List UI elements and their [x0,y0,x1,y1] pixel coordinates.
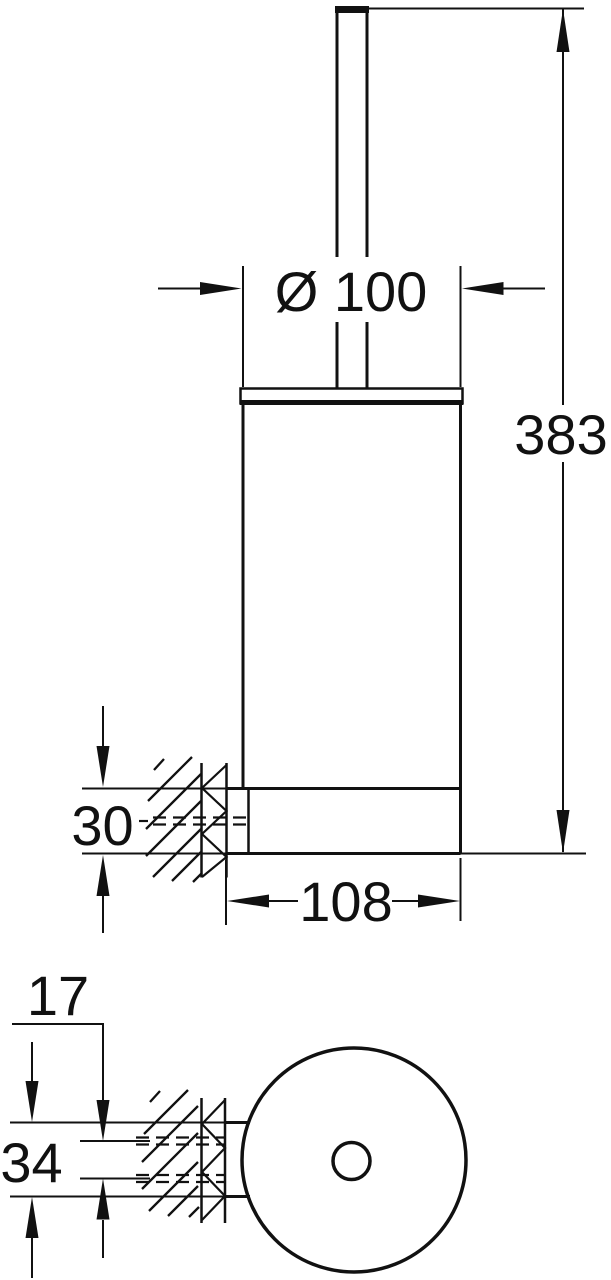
container-outline-circle [242,1048,466,1272]
container-body [243,404,461,854]
dimension-label-base-depth: 108 [299,870,392,933]
arrowhead-up [97,855,110,896]
dimension-label-overall-height: 383 [514,403,607,466]
technical-drawing-canvas: 383 Ø 100 30 108 [0,0,611,1280]
screw-centerlines [136,1138,225,1183]
dimension-overall-height: 383 [368,9,608,854]
center-hole-circle [333,1143,370,1180]
holder-base [227,789,461,854]
arrowhead-up [97,1179,110,1220]
dimension-plate-height: 34 [0,1042,225,1278]
dimension-bracket-height: 30 [71,706,227,933]
brush-handle-cap [335,6,369,13]
arrowhead-left [462,282,504,295]
brush-handle-rod [337,7,367,388]
arrowhead-down [97,1100,110,1141]
bottom-view [136,1048,466,1272]
front-view [139,6,464,882]
arrowhead-right [418,895,460,908]
dimension-label-screw-spacing: 17 [27,964,89,1027]
dimension-drawing: 383 Ø 100 30 108 [0,0,611,1280]
mounting-plate-serration [202,765,227,877]
dimension-base-depth: 108 [226,858,461,933]
dimension-label-bracket-height: 30 [71,794,133,857]
extension-lines [80,1141,150,1179]
arrowhead-up [26,1197,39,1238]
wall-hatching [142,1090,199,1217]
dimension-diameter: Ø 100 [158,260,545,387]
wall-hatching [146,757,202,882]
dimension-label-diameter: Ø 100 [275,260,428,323]
dimension-label-plate-height: 34 [0,1131,62,1194]
arrowhead-down [97,746,110,787]
arrowhead-down [26,1081,39,1122]
arrowhead-down [557,810,570,853]
arrowhead-right [200,282,242,295]
mounting-plate-serration [202,1100,225,1220]
leader-line [12,1024,103,1101]
arrowhead-left [227,895,269,908]
arrowhead-up [557,9,570,52]
